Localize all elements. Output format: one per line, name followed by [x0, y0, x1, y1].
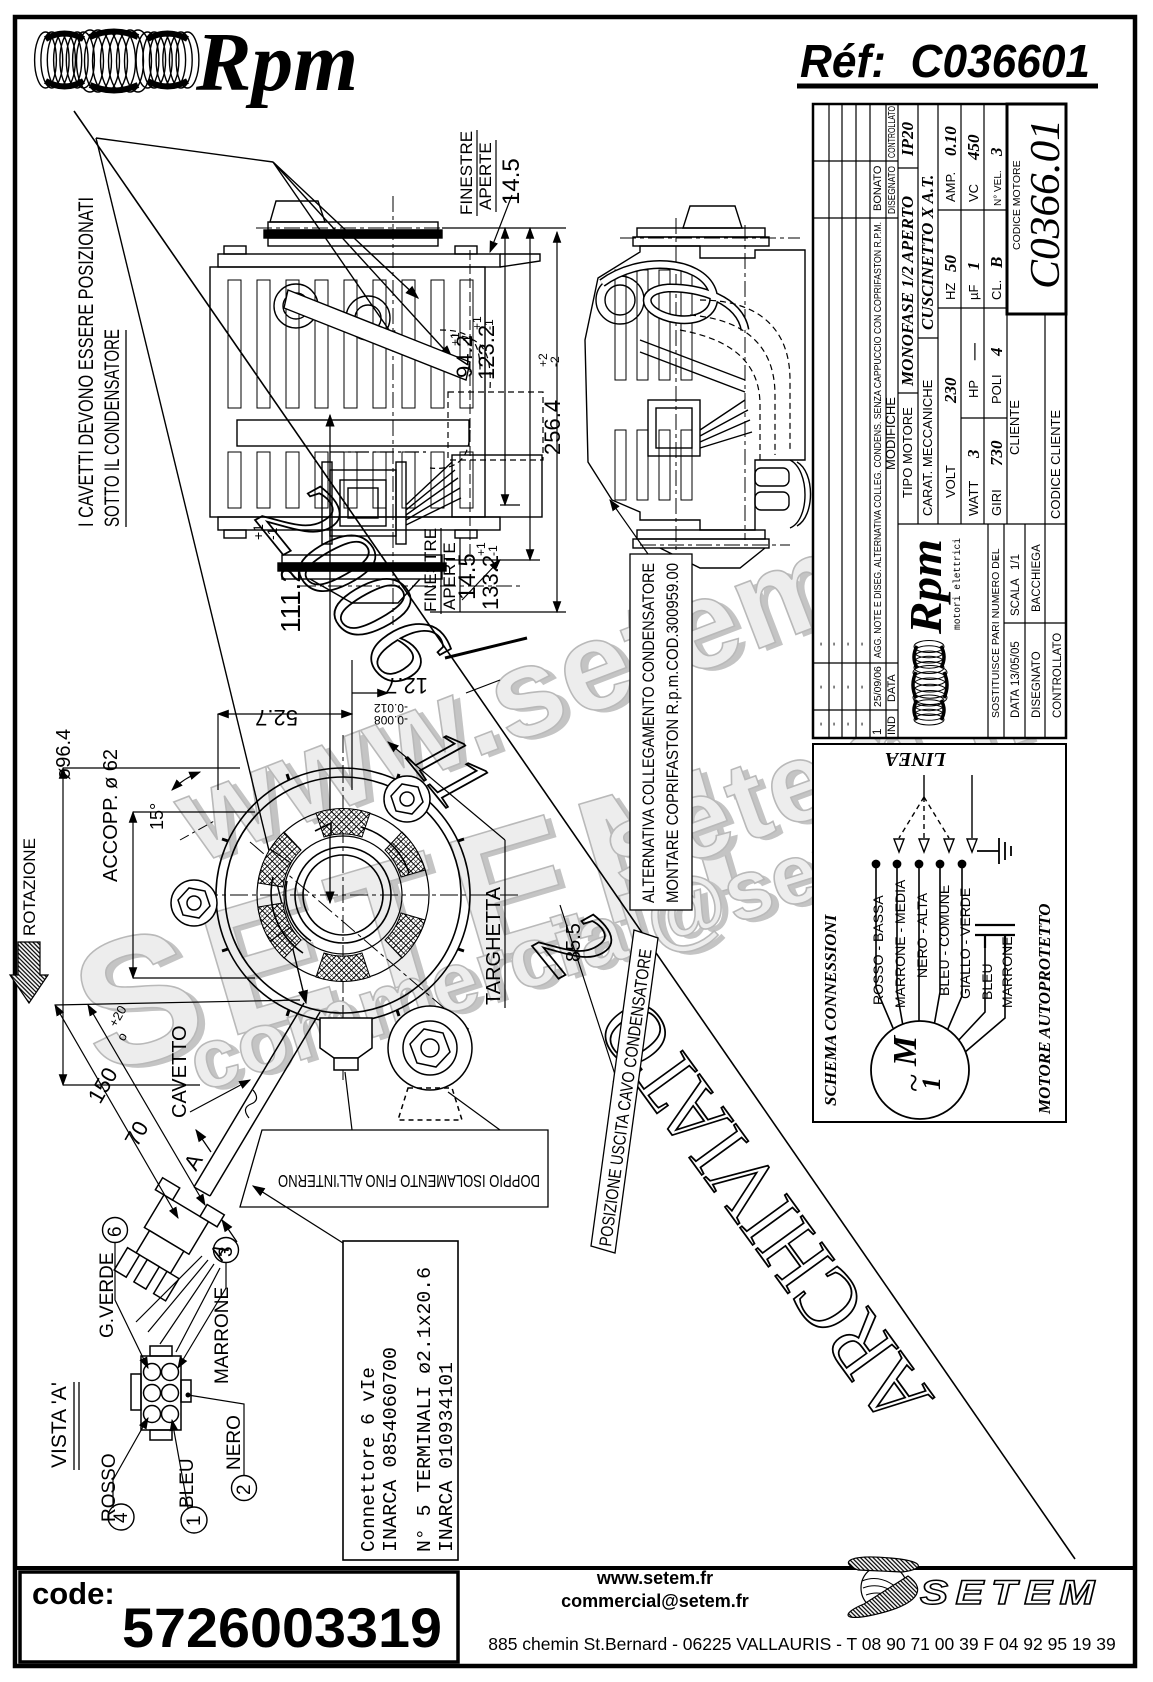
svg-text:DATA: DATA — [886, 674, 898, 702]
svg-text:13/05/05: 13/05/05 — [1010, 641, 1022, 686]
svg-text:POLI: POLI — [989, 374, 1004, 404]
svg-text:BACCHIEGA: BACCHIEGA — [1031, 544, 1043, 612]
svg-text:CONTROLLATO: CONTROLLATO — [1052, 633, 1064, 718]
svg-text:Connettore 6 vIe: Connettore 6 vIe — [358, 1367, 380, 1552]
svg-text:1: 1 — [184, 1515, 205, 1526]
svg-text:-: - — [815, 642, 827, 646]
svg-text:CONTROLLATO: CONTROLLATO — [887, 106, 898, 158]
svg-text:6: 6 — [105, 1226, 126, 1237]
svg-text:WATT: WATT — [966, 481, 981, 516]
svg-text:Rpm: Rpm — [195, 16, 358, 109]
svg-text:MARRONE - MEDIA: MARRONE - MEDIA — [892, 879, 908, 1008]
svg-text:ROSSO - BASSA: ROSSO - BASSA — [870, 895, 886, 1005]
svg-text:MARRONE: MARRONE — [999, 936, 1015, 1008]
svg-text:N° VEL.: N° VEL. — [993, 170, 1004, 206]
svg-text:CODICE MOTORE: CODICE MOTORE — [1011, 160, 1023, 250]
svg-text:-: - — [856, 642, 868, 646]
svg-text:BONATO: BONATO — [872, 165, 884, 211]
svg-text:-1: -1 — [460, 335, 474, 346]
svg-text:52.7: 52.7 — [255, 705, 298, 730]
svg-text:SETEM: SETEM — [920, 1574, 1102, 1612]
svg-text:N° 5 TERMINALI ø2.1x20.6: N° 5 TERMINALI ø2.1x20.6 — [414, 1267, 436, 1552]
svg-text:C0366.01: C0366.01 — [1023, 119, 1069, 289]
svg-text:VOLT: VOLT — [943, 465, 958, 498]
svg-text:256.4: 256.4 — [540, 400, 565, 455]
svg-text:µF: µF — [966, 285, 981, 300]
svg-text:DOPPIO ISOLAMENTO FINO ALL'INT: DOPPIO ISOLAMENTO FINO ALL'INTERNO — [278, 1171, 540, 1191]
svg-text:85.5: 85.5 — [563, 923, 585, 962]
svg-text:730: 730 — [987, 440, 1006, 466]
svg-text:-: - — [842, 722, 854, 726]
svg-text:14.5: 14.5 — [454, 553, 481, 600]
svg-text:-: - — [815, 685, 827, 689]
svg-text:-: - — [842, 642, 854, 646]
svg-text:CODICE CLIENTE: CODICE CLIENTE — [1048, 410, 1063, 519]
svg-text:3: 3 — [216, 1246, 237, 1257]
svg-text:4: 4 — [111, 1512, 132, 1523]
svg-text:VC: VC — [966, 184, 981, 202]
svg-text:50: 50 — [941, 255, 960, 273]
svg-text:-: - — [842, 685, 854, 689]
svg-text:NERO - ALTA: NERO - ALTA — [914, 892, 930, 978]
svg-text:14.5: 14.5 — [498, 158, 525, 205]
svg-text:commercial@setem.fr: commercial@setem.fr — [561, 1591, 749, 1611]
svg-text:~: ~ — [896, 1074, 933, 1092]
svg-text:123.2: 123.2 — [474, 325, 499, 380]
svg-text:1: 1 — [964, 262, 983, 271]
svg-text:motori elettrici: motori elettrici — [952, 538, 964, 630]
svg-text:GIRI: GIRI — [989, 489, 1004, 516]
svg-text:1/1: 1/1 — [1010, 554, 1022, 570]
svg-text:BLEU: BLEU — [979, 963, 995, 1000]
svg-text:450: 450 — [964, 134, 983, 161]
svg-text:133.2: 133.2 — [478, 555, 503, 610]
svg-text:IND: IND — [886, 716, 898, 735]
svg-text:12.7: 12.7 — [385, 673, 428, 698]
svg-text:2: 2 — [234, 1484, 255, 1495]
svg-text:SOSTITUISCE PARI NUMERO DEL: SOSTITUISCE PARI NUMERO DEL — [990, 548, 1002, 718]
svg-text:0.10: 0.10 — [941, 126, 960, 156]
svg-text:1: 1 — [872, 729, 884, 735]
svg-text:SCALA: SCALA — [1010, 578, 1022, 616]
svg-text:-: - — [828, 642, 840, 646]
svg-text:230: 230 — [941, 377, 960, 404]
svg-text:MOTORE AUTOPROTETTO: MOTORE AUTOPROTETTO — [1035, 904, 1054, 1115]
svg-text:-: - — [828, 685, 840, 689]
svg-text:885 chemin St.Bernard - 0622: 885 chemin St.Bernard - 06225 VALLAURIS … — [488, 1634, 1116, 1654]
svg-text:BLEU - COMUNE: BLEU - COMUNE — [936, 885, 952, 996]
svg-text:Réf: C036601: Réf: C036601 — [800, 35, 1090, 87]
svg-text:15°: 15° — [147, 803, 167, 830]
svg-text:25/09/06: 25/09/06 — [872, 666, 884, 707]
svg-text:5726003319: 5726003319 — [122, 1596, 442, 1659]
svg-text:-1: -1 — [264, 527, 280, 540]
svg-text:TIPO MOTORE: TIPO MOTORE — [900, 407, 915, 498]
svg-text:FINESTRE: FINESTRE — [457, 131, 476, 215]
svg-text:I CAVETTI DEVONO ESSERE POSIZI: I CAVETTI DEVONO ESSERE POSIZIONATI — [75, 197, 98, 527]
svg-text:CUSCINETTO X A.T.: CUSCINETTO X A.T. — [918, 175, 937, 330]
svg-text:IP20: IP20 — [898, 122, 917, 158]
svg-text:CL.: CL. — [989, 280, 1004, 300]
svg-text:AMP.: AMP. — [943, 172, 958, 202]
svg-text:APERTE: APERTE — [476, 142, 495, 210]
svg-text:-: - — [856, 722, 868, 726]
svg-text:GIALLO - VERDE: GIALLO - VERDE — [957, 888, 973, 999]
svg-text:CLIENTE: CLIENTE — [1007, 400, 1022, 455]
svg-text:Rpm: Rpm — [900, 539, 951, 635]
svg-text:ø96.4: ø96.4 — [53, 729, 75, 780]
svg-text:-: - — [856, 685, 868, 689]
svg-text:HP: HP — [966, 380, 981, 398]
svg-text:ALTERNATIVA COLLEGAMENTO CONDE: ALTERNATIVA COLLEGAMENTO CONDENSATORE — [640, 563, 658, 903]
svg-text:CARAT. MECCANICHE: CARAT. MECCANICHE — [920, 379, 935, 516]
svg-text:MONTARE COPRIFASTON R.p.m.COD.: MONTARE COPRIFASTON R.p.m.COD.300959.00 — [664, 563, 682, 903]
svg-text:M: M — [887, 1034, 924, 1067]
svg-text:MONOFASE 1/2 APERTO: MONOFASE 1/2 APERTO — [898, 196, 917, 387]
svg-text:INARCA 0854060700: INARCA 0854060700 — [380, 1347, 402, 1552]
svg-text:SCHEMA CONNESSIONI: SCHEMA CONNESSIONI — [821, 913, 840, 1106]
svg-text:DISEGNATO: DISEGNATO — [1031, 651, 1043, 718]
svg-text:ROTAZIONE: ROTAZIONE — [20, 838, 39, 936]
svg-text:—: — — [964, 343, 983, 361]
svg-text:MODIFICHE: MODIFICHE — [883, 397, 898, 470]
svg-text:FINESTRE: FINESTRE — [421, 528, 440, 612]
svg-text:www.setem.fr: www.setem.fr — [596, 1568, 713, 1588]
svg-text:LINEA: LINEA — [885, 748, 947, 770]
svg-text:code:: code: — [32, 1576, 115, 1611]
svg-text:MARRONE: MARRONE — [212, 1287, 233, 1384]
svg-text:HZ: HZ — [943, 283, 958, 300]
svg-text:DISEGNATO: DISEGNATO — [887, 166, 898, 214]
svg-text:-1: -1 — [482, 319, 496, 330]
svg-text:DATA: DATA — [1010, 689, 1022, 718]
svg-text:-1: -1 — [486, 545, 500, 556]
svg-text:-: - — [991, 556, 1003, 560]
svg-text:SOTTO IL CONDENSATORE: SOTTO IL CONDENSATORE — [101, 329, 124, 527]
svg-text:CAVETTO: CAVETTO — [169, 1025, 191, 1118]
svg-text:-: - — [828, 722, 840, 726]
svg-text:TARGHETTA: TARGHETTA — [483, 886, 505, 1005]
svg-text:-2: -2 — [548, 356, 562, 367]
svg-text:ACCOPP. ø 62: ACCOPP. ø 62 — [100, 749, 122, 882]
svg-text:VISTA 'A': VISTA 'A' — [48, 1382, 71, 1468]
svg-text:3: 3 — [987, 147, 1006, 157]
svg-text:3: 3 — [964, 449, 983, 459]
svg-text:B: B — [987, 257, 1006, 269]
svg-text:NERO: NERO — [224, 1415, 245, 1470]
svg-text:-0.012: -0.012 — [374, 701, 408, 715]
svg-text:-: - — [815, 722, 827, 726]
svg-text:INARCA 010934101: INARCA 010934101 — [436, 1362, 458, 1552]
svg-text:111.2: 111.2 — [275, 567, 306, 633]
svg-text:4: 4 — [987, 348, 1006, 358]
